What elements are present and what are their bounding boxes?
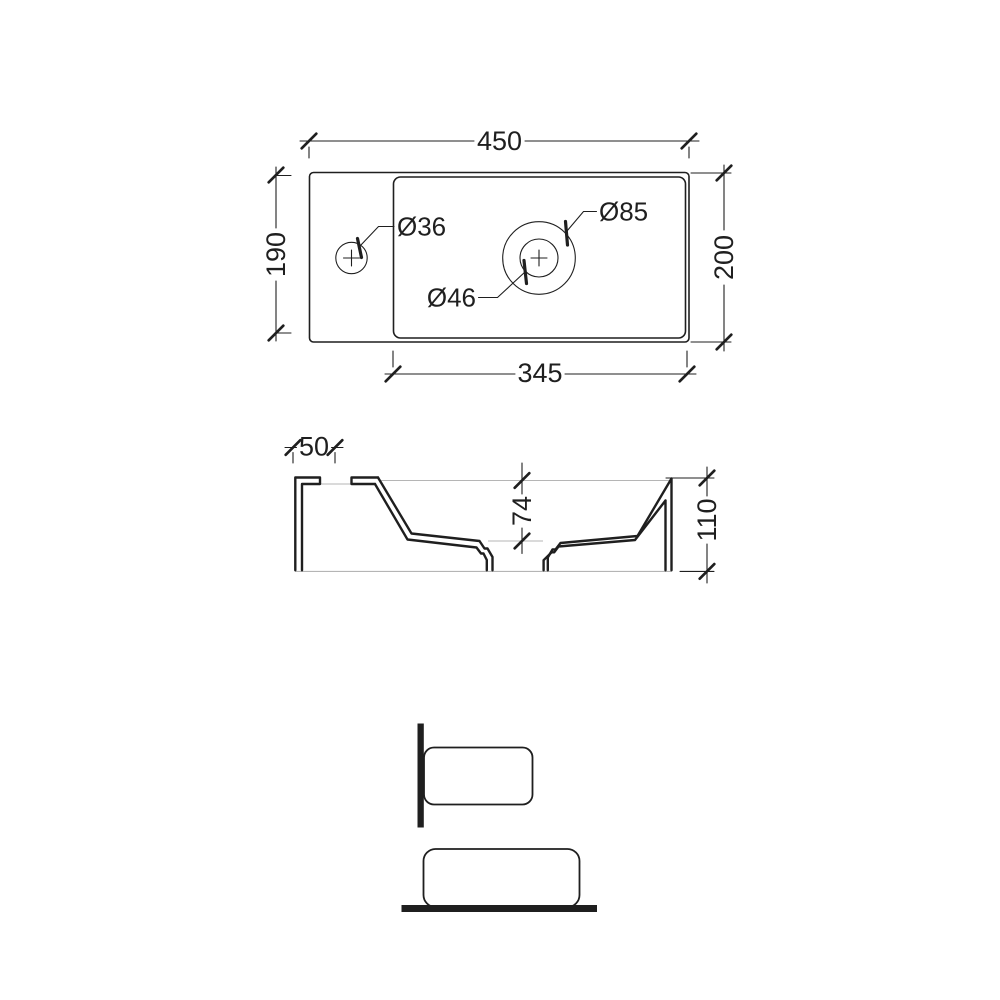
basin-side-profile bbox=[424, 748, 533, 805]
dim-value-overall-height: 110 bbox=[692, 498, 722, 541]
side-installation-view bbox=[418, 724, 533, 828]
label-drain-recess-diameter: Ø85 bbox=[599, 197, 648, 227]
top-view: 450 190 200 345 bbox=[261, 126, 739, 388]
dim-basin-depth: 74 bbox=[507, 463, 537, 554]
dim-overall-height: 110 bbox=[666, 467, 722, 583]
section-right-wall-inner bbox=[544, 501, 666, 571]
leader-line bbox=[567, 212, 597, 232]
dim-value-right-depth: 200 bbox=[709, 235, 739, 280]
drawing-page: 450 190 200 345 bbox=[0, 0, 1000, 1000]
dim-overall-width: 450 bbox=[300, 126, 699, 158]
dim-basin-width: 345 bbox=[385, 351, 696, 388]
dim-value-overall-width: 450 bbox=[477, 126, 522, 156]
leader-drain-recess: Ø85 bbox=[566, 197, 649, 246]
leader-tick bbox=[358, 239, 362, 258]
section-left-wall bbox=[295, 478, 320, 571]
section-rim-bar bbox=[352, 478, 379, 485]
leader-line bbox=[479, 272, 526, 298]
dim-value-left-depth: 190 bbox=[261, 232, 291, 277]
counter-bar bbox=[402, 905, 598, 912]
leader-line bbox=[360, 227, 394, 247]
dim-value-basin-width: 345 bbox=[517, 358, 562, 388]
section-left-slope-outer bbox=[378, 478, 493, 571]
leader-drain-hole: Ø46 bbox=[427, 261, 527, 313]
front-installation-view bbox=[402, 849, 598, 912]
section-left-slope-inner bbox=[375, 484, 487, 570]
section-right-wall-outer bbox=[548, 479, 672, 571]
section-view: 50 74 110 bbox=[285, 432, 722, 584]
leader-tap-hole: Ø36 bbox=[358, 212, 447, 258]
dim-tap-offset: 50 bbox=[285, 432, 343, 464]
dim-left-depth: 190 bbox=[261, 167, 291, 341]
wall-bar bbox=[418, 724, 424, 828]
dim-value-tap-offset: 50 bbox=[299, 432, 329, 462]
tap-hole-center-mark bbox=[344, 250, 360, 266]
dim-value-basin-depth: 74 bbox=[507, 496, 537, 526]
label-tap-hole-diameter: Ø36 bbox=[397, 212, 446, 242]
dim-right-depth: 200 bbox=[691, 165, 739, 351]
leader-tick bbox=[566, 222, 568, 246]
basin-front-profile bbox=[424, 849, 580, 907]
label-drain-hole-diameter: Ø46 bbox=[427, 283, 476, 313]
technical-drawing-canvas: 450 190 200 345 bbox=[0, 0, 1000, 1000]
drain-center-mark bbox=[531, 250, 547, 266]
